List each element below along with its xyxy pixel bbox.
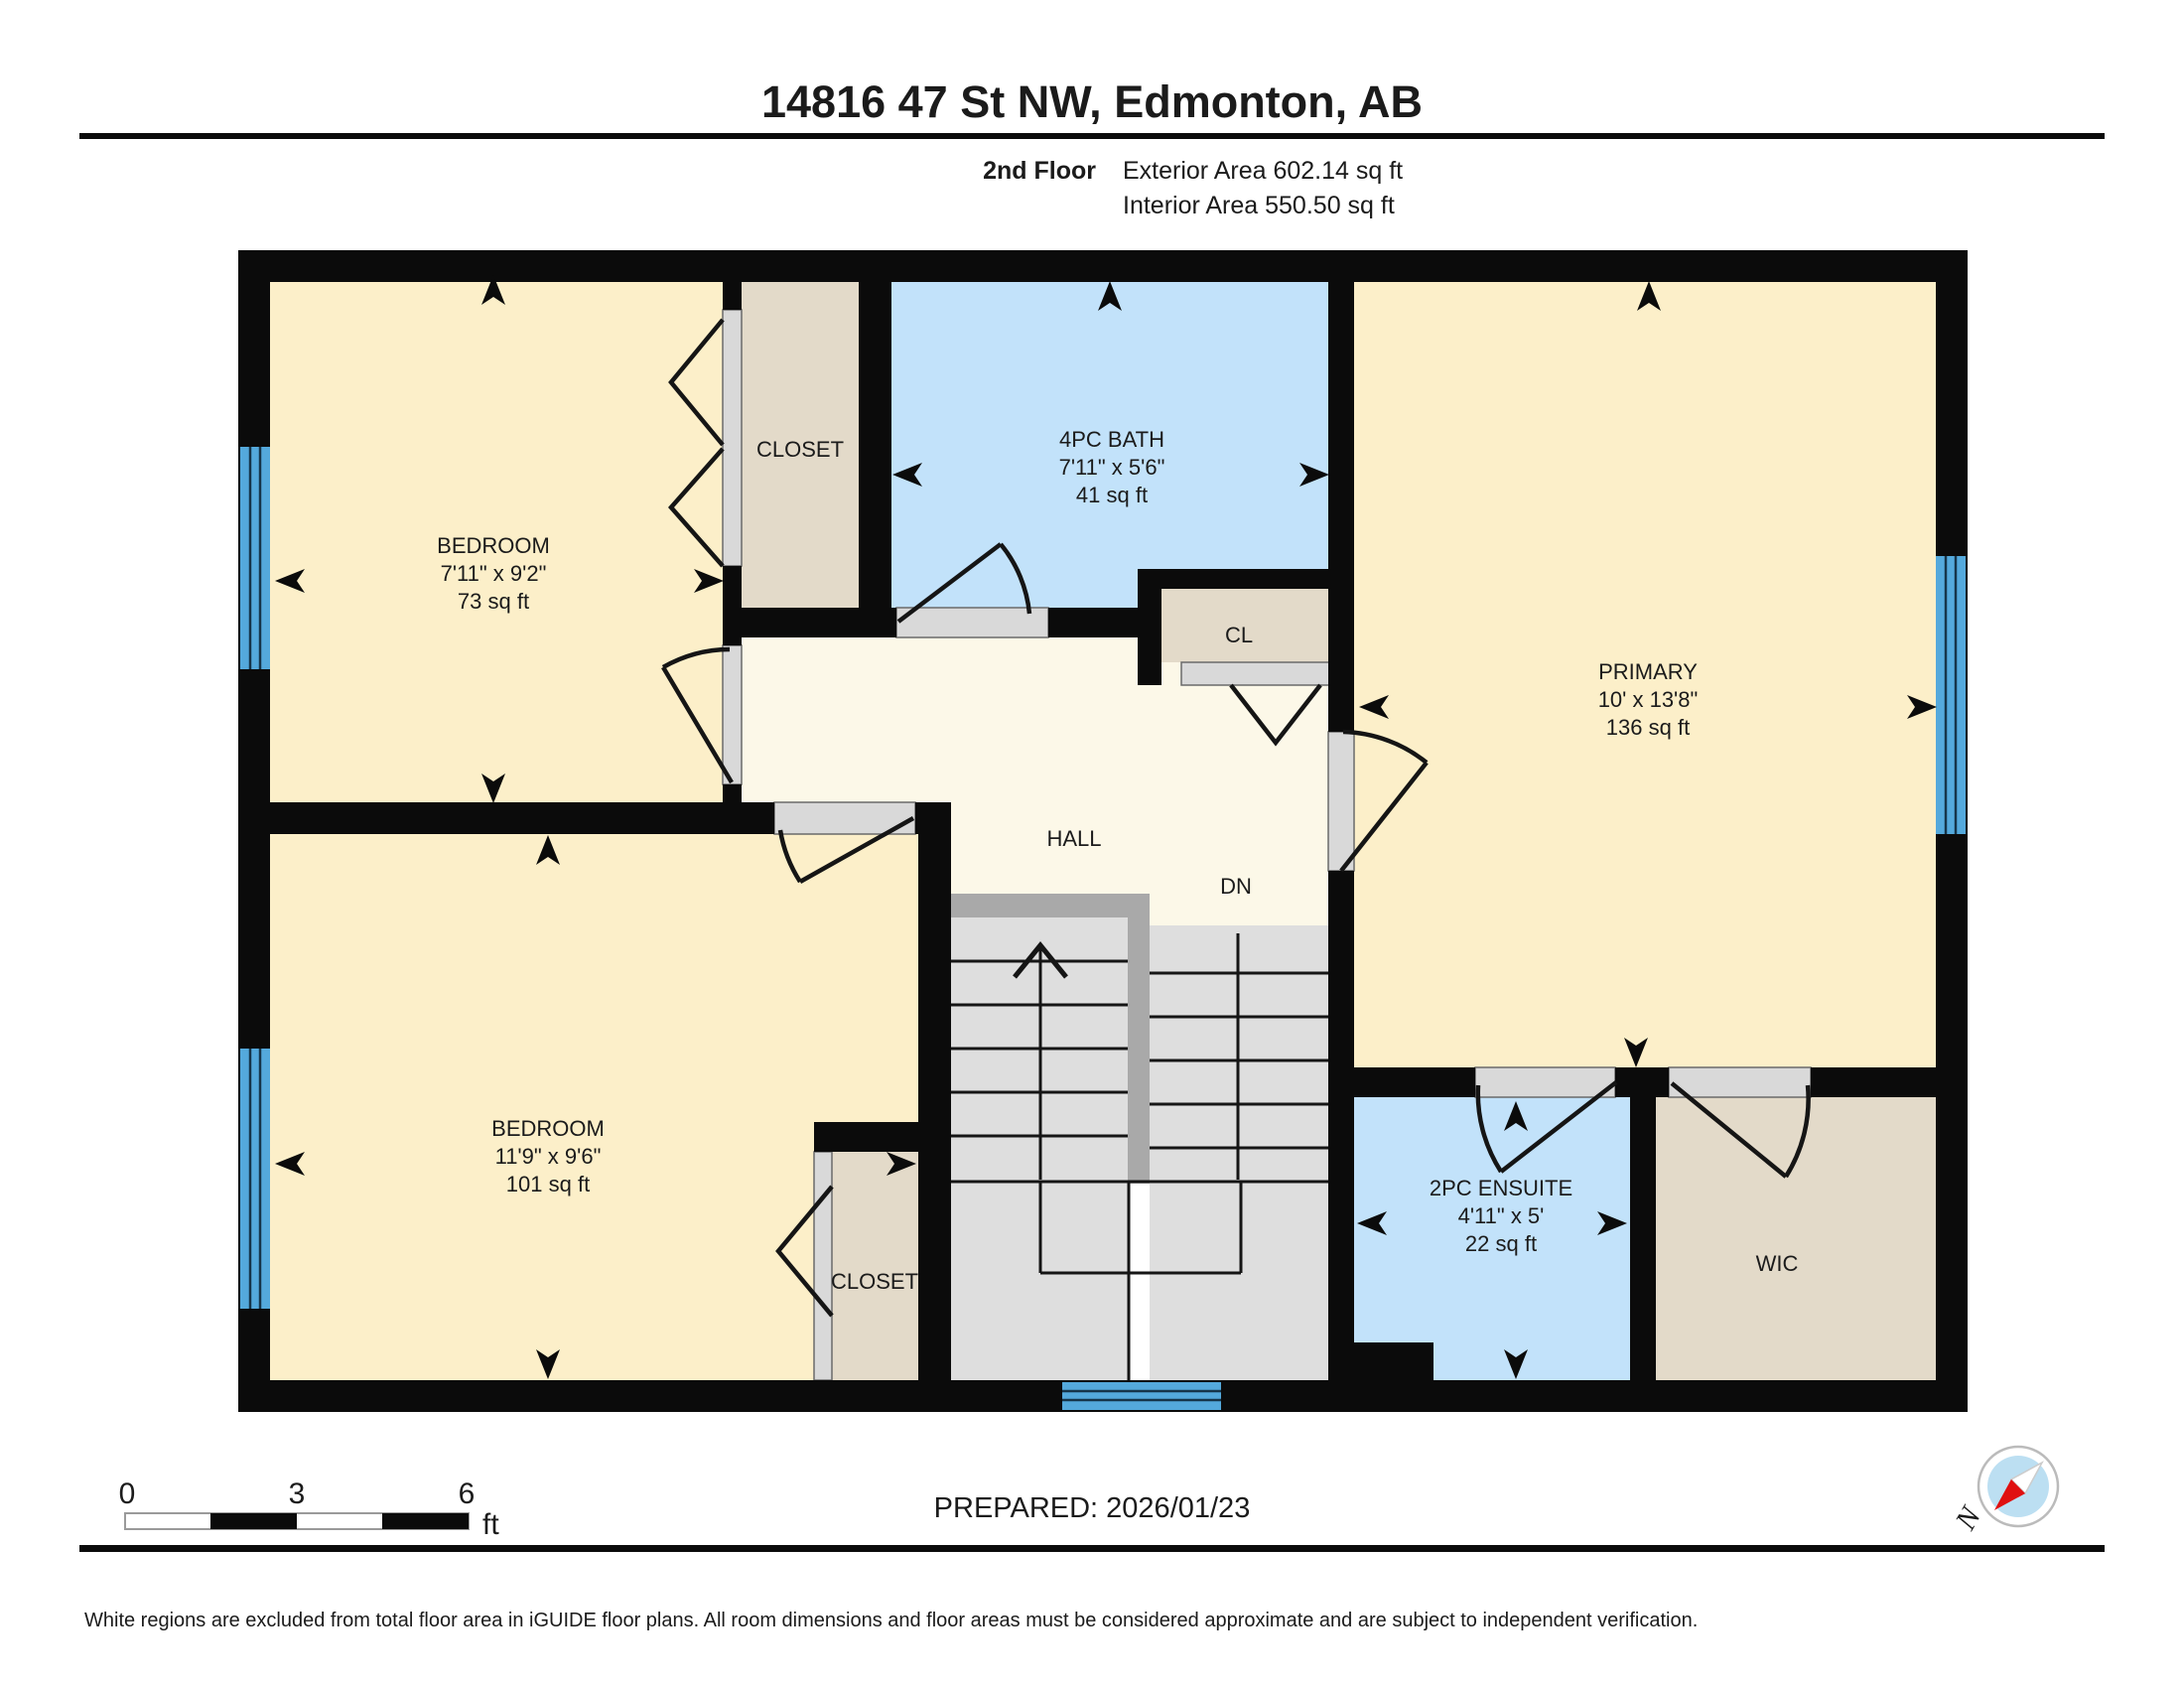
svg-text:101 sq ft: 101 sq ft xyxy=(506,1172,590,1196)
floor-plan-page: 14816 47 St NW, Edmonton, AB 2nd Floor E… xyxy=(0,0,2184,1688)
room-label-closet-bottom: CLOSET xyxy=(831,1269,918,1294)
scale-bar-segment xyxy=(382,1513,469,1529)
wall-primary-west-upper xyxy=(1328,250,1354,732)
footer-divider xyxy=(79,1545,2105,1552)
scale-tick-6: 6 xyxy=(459,1477,476,1510)
compass-icon: N xyxy=(1949,1447,2058,1536)
svg-text:7'11" x 9'2": 7'11" x 9'2" xyxy=(441,561,547,586)
wic-floor xyxy=(1656,1097,1936,1380)
exterior-area: Exterior Area 602.14 sq ft xyxy=(1123,157,1403,185)
room-label-wic: WIC xyxy=(1756,1251,1799,1276)
wall-primary-bottom xyxy=(1615,1067,1669,1097)
closet-top-track xyxy=(723,310,742,566)
wall-closet-bottom xyxy=(723,608,896,637)
scale-unit: ft xyxy=(482,1508,499,1541)
svg-text:22 sq ft: 22 sq ft xyxy=(1465,1231,1537,1256)
svg-text:136 sq ft: 136 sq ft xyxy=(1606,715,1690,740)
wall-bath-west xyxy=(859,250,891,608)
closet-bottom-floor xyxy=(832,1152,918,1380)
scale-bar: 0 3 6 ft xyxy=(119,1477,500,1541)
wall-bedroom-bottom-east xyxy=(918,834,951,1380)
interior-area: Interior Area 550.50 sq ft xyxy=(1123,192,1395,219)
window-bedroom-top xyxy=(240,447,270,669)
window-primary xyxy=(1936,556,1966,834)
prepared-date: PREPARED: 2026/01/23 xyxy=(934,1492,1251,1524)
room-label-closet-top: CLOSET xyxy=(756,437,844,462)
floor-plan-canvas: 14816 47 St NW, Edmonton, AB 2nd Floor E… xyxy=(0,0,2184,1688)
room-label-bedroom-bottom: BEDROOM 11'9" x 9'6" 101 sq ft xyxy=(491,1116,605,1196)
wall-primary-west-lower xyxy=(1328,871,1354,1067)
svg-text:2PC ENSUITE: 2PC ENSUITE xyxy=(1430,1176,1572,1200)
page-title: 14816 47 St NW, Edmonton, AB xyxy=(761,76,1423,127)
window-bedroom-bottom xyxy=(240,1049,270,1309)
cl-door-threshold xyxy=(1181,662,1330,685)
ensuite-door-threshold xyxy=(1475,1067,1615,1097)
wall-primary-bottom xyxy=(1811,1067,1938,1097)
room-label-hall: HALL xyxy=(1046,826,1101,851)
floor-label: 2nd Floor xyxy=(983,157,1096,185)
wall-ensuite-west xyxy=(1328,1097,1354,1382)
wall-bedroom-divider xyxy=(238,802,774,834)
wall-stub xyxy=(723,282,742,310)
wall-cl-top xyxy=(1138,569,1354,589)
bath-door-threshold xyxy=(896,608,1048,637)
wall-ensuite-wic-divider xyxy=(1630,1097,1656,1380)
svg-text:4'11" x 5': 4'11" x 5' xyxy=(1458,1203,1545,1228)
svg-text:10' x 13'8": 10' x 13'8" xyxy=(1598,687,1699,712)
stair-rail xyxy=(1128,894,1150,1184)
wall-bath-bottom xyxy=(1048,608,1138,637)
scale-tick-0: 0 xyxy=(119,1477,136,1510)
svg-text:4PC BATH: 4PC BATH xyxy=(1059,427,1164,452)
wic-door-threshold xyxy=(1669,1067,1811,1097)
window-stairwell xyxy=(1062,1382,1221,1410)
staircase xyxy=(951,894,1328,1380)
wall-closet-bottom-top xyxy=(814,1122,918,1152)
disclaimer-text: White regions are excluded from total fl… xyxy=(84,1610,1698,1631)
wall-ensuite-notch xyxy=(1354,1342,1433,1380)
wall-bedroom-divider-corner xyxy=(915,802,951,834)
svg-text:41 sq ft: 41 sq ft xyxy=(1076,483,1148,507)
svg-text:PRIMARY: PRIMARY xyxy=(1598,659,1698,684)
scale-tick-3: 3 xyxy=(289,1477,306,1510)
svg-text:BEDROOM: BEDROOM xyxy=(491,1116,605,1141)
room-label-cl: CL xyxy=(1225,623,1253,647)
stairs-down-label: DN xyxy=(1220,874,1252,899)
svg-text:7'11" x 5'6": 7'11" x 5'6" xyxy=(1059,455,1165,480)
header-divider xyxy=(79,133,2105,139)
svg-text:BEDROOM: BEDROOM xyxy=(437,533,550,558)
wall-exterior-top xyxy=(238,250,1968,282)
wall-cl-left xyxy=(1138,569,1161,685)
room-label-primary: PRIMARY 10' x 13'8" 136 sq ft xyxy=(1598,659,1699,740)
scale-bar-segment xyxy=(210,1513,297,1529)
svg-text:73 sq ft: 73 sq ft xyxy=(458,589,529,614)
bedroom-top-door-threshold xyxy=(723,645,742,784)
wall-primary-bottom xyxy=(1328,1067,1475,1097)
svg-text:11'9" x 9'6": 11'9" x 9'6" xyxy=(495,1144,602,1169)
primary-door-threshold xyxy=(1328,732,1354,871)
stair-rail-cap xyxy=(951,894,1150,917)
closet-bottom-track xyxy=(814,1152,832,1380)
